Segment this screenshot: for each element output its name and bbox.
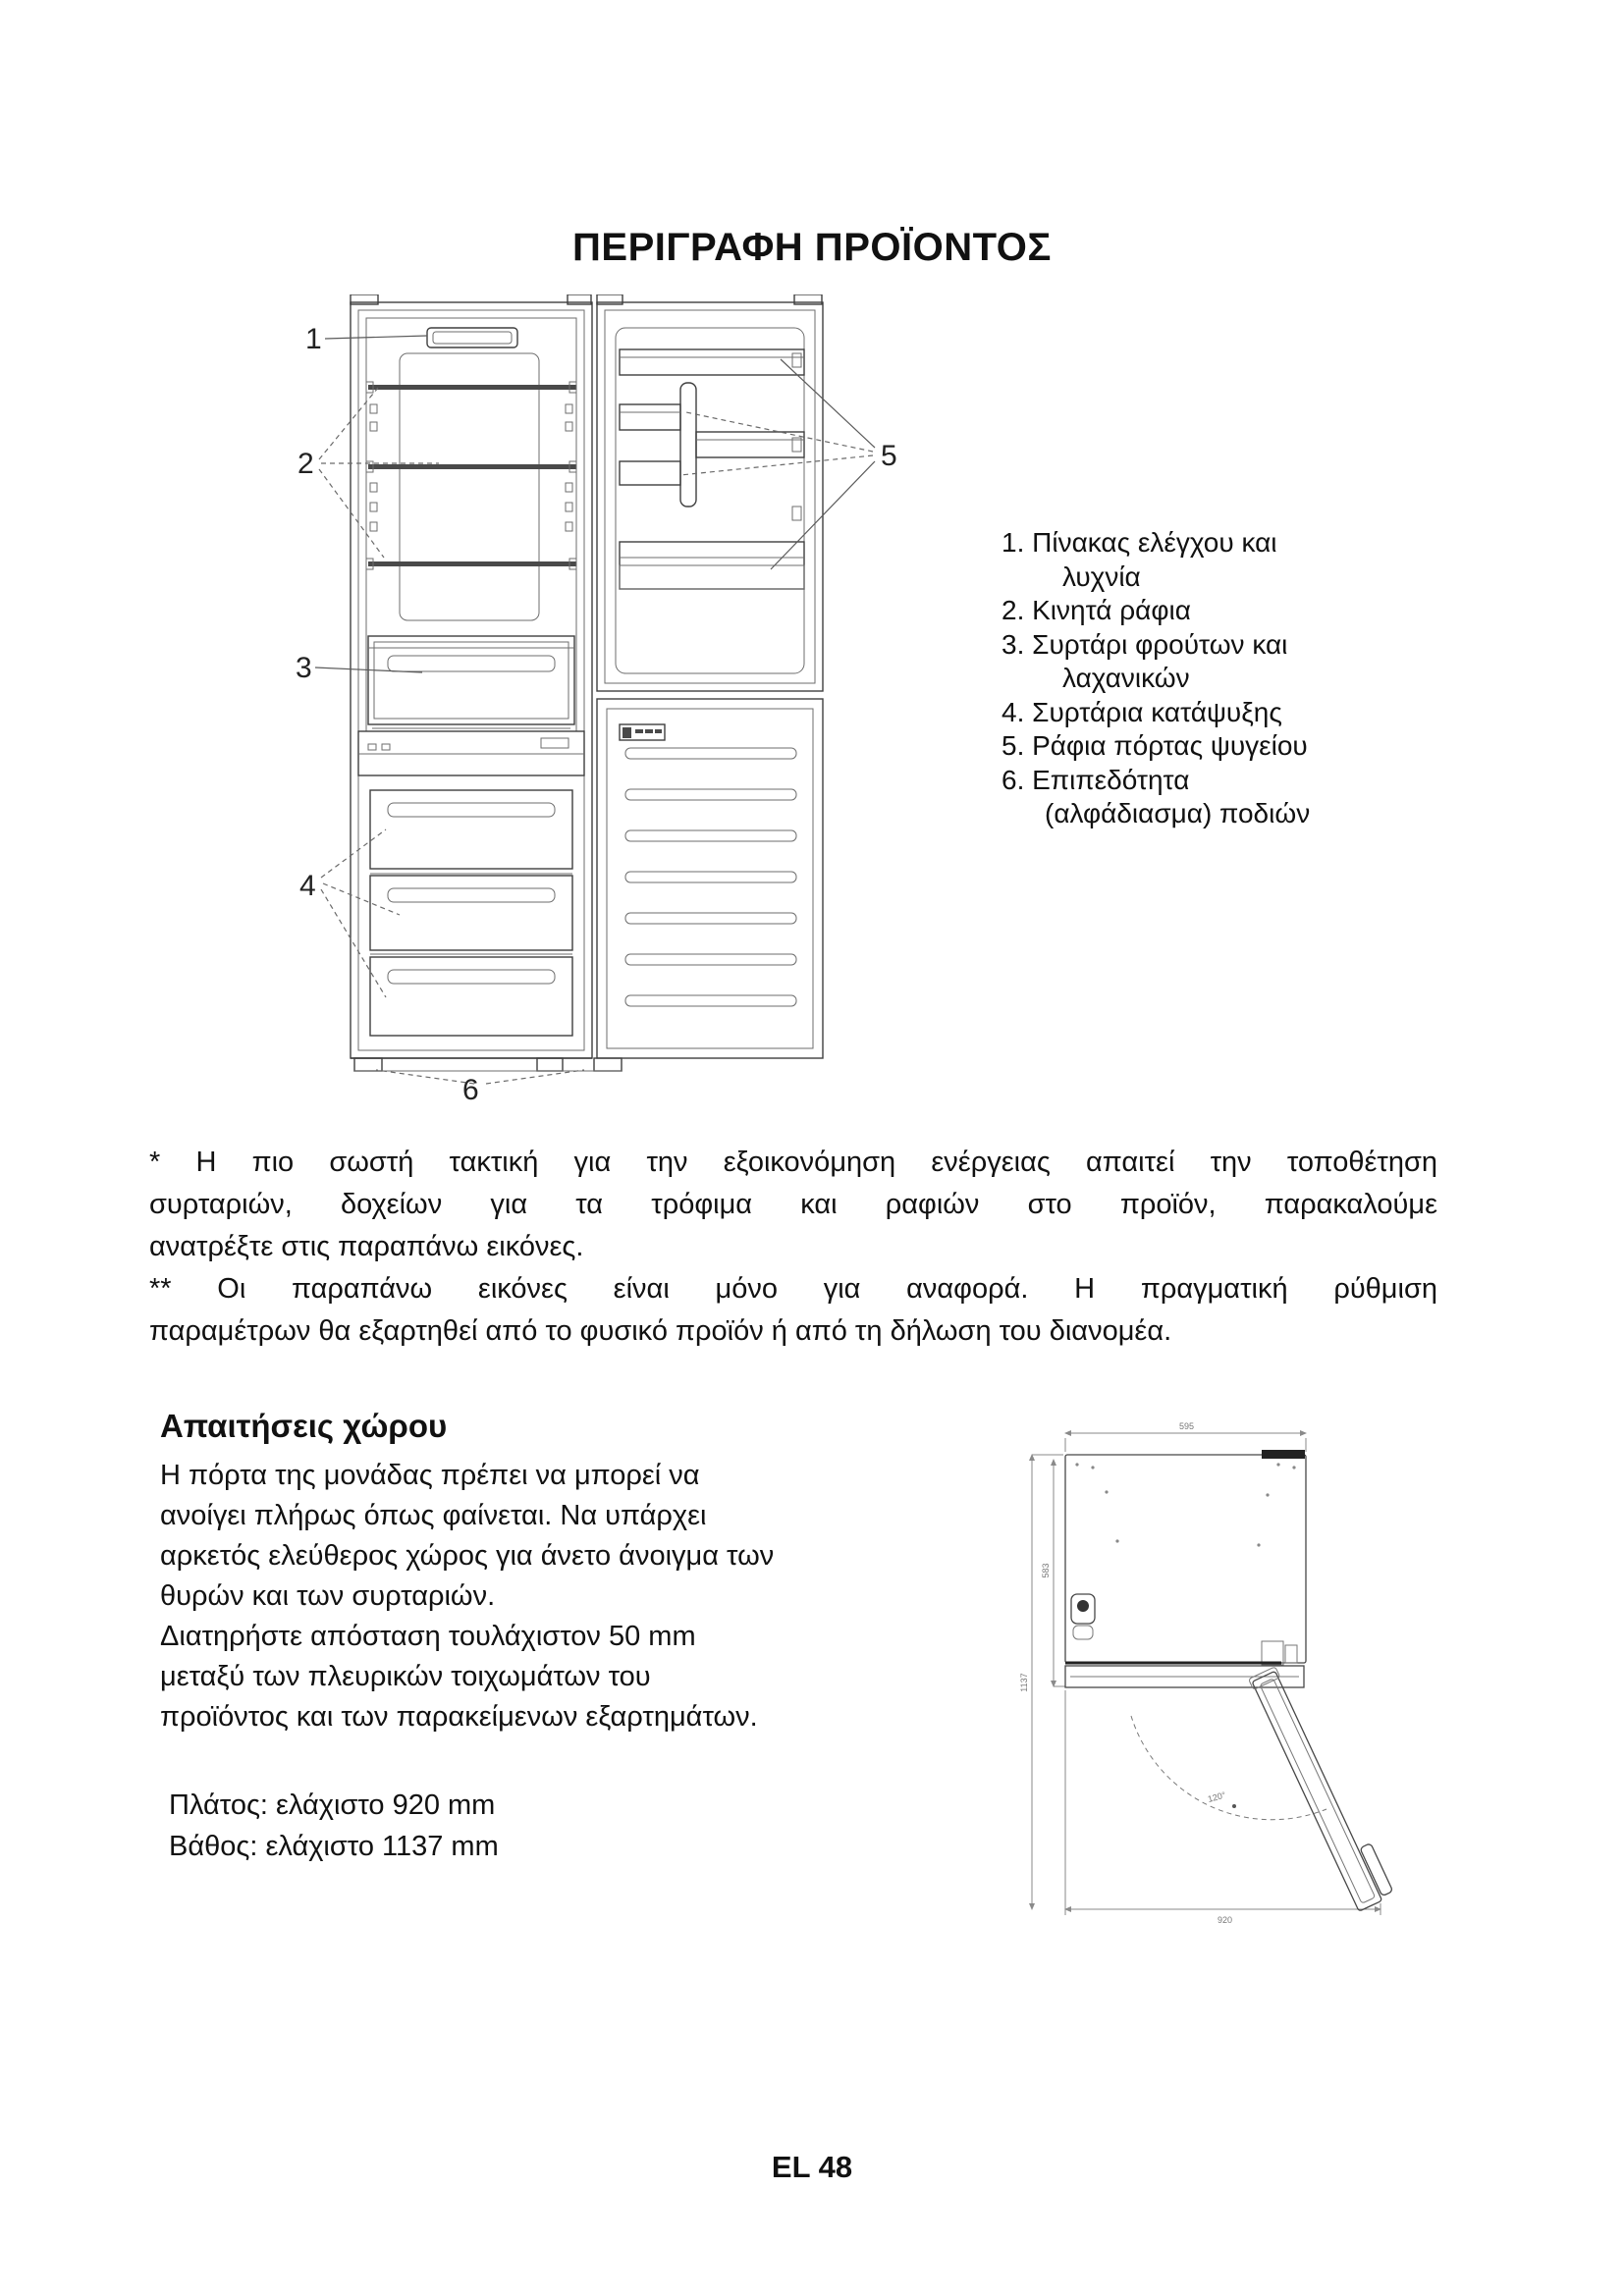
control-panel <box>427 328 517 347</box>
callout-4: 4 <box>299 870 316 902</box>
manual-page: ΠΕΡΙΓΡΑΦΗ ΠΡΟΪΟΝΤΟΣ <box>0 0 1624 2296</box>
callout-5: 5 <box>881 440 897 472</box>
space-diagram: 595 583 1137 920 <box>1016 1406 1409 1936</box>
list-item: 3. Συρτάρι φρούτων και λαχανικών <box>1001 628 1310 696</box>
dim-cabinet-depth: 583 <box>1041 1563 1051 1577</box>
fridge-door <box>597 294 823 691</box>
door-swing-arc <box>1131 1716 1326 1820</box>
callout-3: 3 <box>296 652 312 684</box>
fridge-cabinet <box>351 294 622 1071</box>
notes: * Η πιο σωστή τακτική για την εξοικονόμη… <box>149 1142 1437 1353</box>
dim-min-depth: 1137 <box>1019 1673 1029 1691</box>
product-diagram: 1 2 3 4 5 6 <box>290 294 938 1101</box>
section-body: Η πόρτα της μονάδας πρέπει να μπορεί να … <box>160 1456 774 1737</box>
list-item: 1. Πίνακας ελέγχου και λυχνία <box>1001 526 1310 594</box>
note-text: * Η πιο σωστή τακτική για την εξοικονόμη… <box>149 1142 1437 1184</box>
callout-1: 1 <box>305 323 322 355</box>
section-heading: Απαιτήσεις χώρου <box>160 1408 447 1445</box>
arc-dot <box>1232 1804 1236 1808</box>
dim-min-width: 920 <box>1218 1915 1232 1925</box>
page-number: EL 48 <box>0 2150 1624 2185</box>
door-angle-label: 120° <box>1207 1789 1227 1804</box>
shelves <box>366 382 576 569</box>
note-text: συρταριών, δοχείων για τα τρόφιμα και ρα… <box>149 1184 1437 1226</box>
dim-cabinet-width: 595 <box>1179 1421 1194 1431</box>
leveling-feet <box>351 1058 622 1071</box>
callout-2: 2 <box>298 448 314 480</box>
note-text: ** Οι παραπάνω εικόνες είναι μόνο για αν… <box>149 1268 1437 1310</box>
dimension-lines <box>1032 1433 1380 1915</box>
list-item: 2. Κινητά ράφια <box>1001 594 1310 628</box>
note-text: παραμέτρων θα εξαρτηθεί από το φυσικό πρ… <box>149 1310 1437 1353</box>
open-door <box>1249 1662 1395 1912</box>
width-note: Πλάτος: ελάχιστο 920 mm <box>169 1785 499 1826</box>
callout-6: 6 <box>462 1074 479 1101</box>
rating-badge <box>620 724 665 740</box>
freezer-door <box>597 699 823 1058</box>
list-item: 4. Συρτάρια κατάψυξης <box>1001 696 1310 730</box>
compartment-divider <box>358 731 584 775</box>
hinge-left <box>1071 1594 1095 1639</box>
list-item: 5. Ράφια πόρτας ψυγείου <box>1001 729 1310 764</box>
crisper-drawer <box>368 636 574 728</box>
dimension-notes: Πλάτος: ελάχιστο 920 mm Βάθος: ελάχιστο … <box>169 1785 499 1867</box>
freezer-drawers <box>370 790 572 1036</box>
hinge-right <box>1262 1641 1297 1665</box>
page-title: ΠΕΡΙΓΡΑΦΗ ΠΡΟΪΟΝΤΟΣ <box>0 226 1624 270</box>
list-item: 6. Επιπεδότητα (αλφάδιασμα) ποδιών <box>1001 764 1310 831</box>
parts-list: 1. Πίνακας ελέγχου και λυχνία 2. Κινητά … <box>1001 526 1310 831</box>
depth-note: Βάθος: ελάχιστο 1137 mm <box>169 1826 499 1867</box>
cabinet-top-view <box>1065 1450 1306 1687</box>
note-text: ανατρέξτε στις παραπάνω εικόνες. <box>149 1226 1437 1268</box>
